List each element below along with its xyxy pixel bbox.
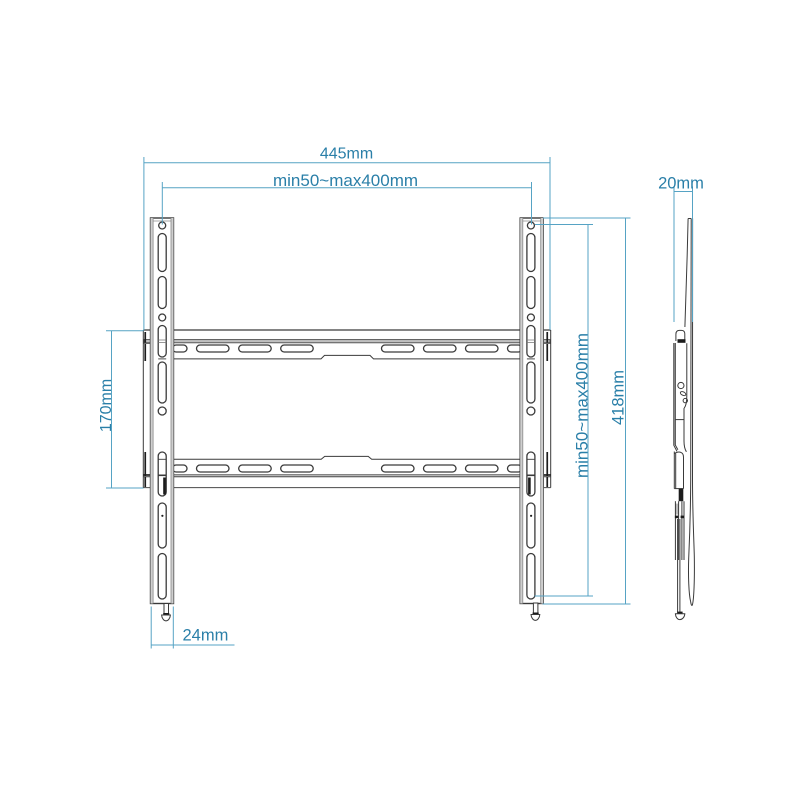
svg-text:170mm: 170mm xyxy=(98,379,115,432)
svg-text:24mm: 24mm xyxy=(183,627,229,645)
svg-text:min50~max400mm: min50~max400mm xyxy=(573,333,592,478)
svg-text:418mm: 418mm xyxy=(610,370,628,425)
svg-text:20mm: 20mm xyxy=(658,175,704,193)
svg-text:min50~max400mm: min50~max400mm xyxy=(273,171,418,190)
svg-text:445mm: 445mm xyxy=(320,146,373,163)
